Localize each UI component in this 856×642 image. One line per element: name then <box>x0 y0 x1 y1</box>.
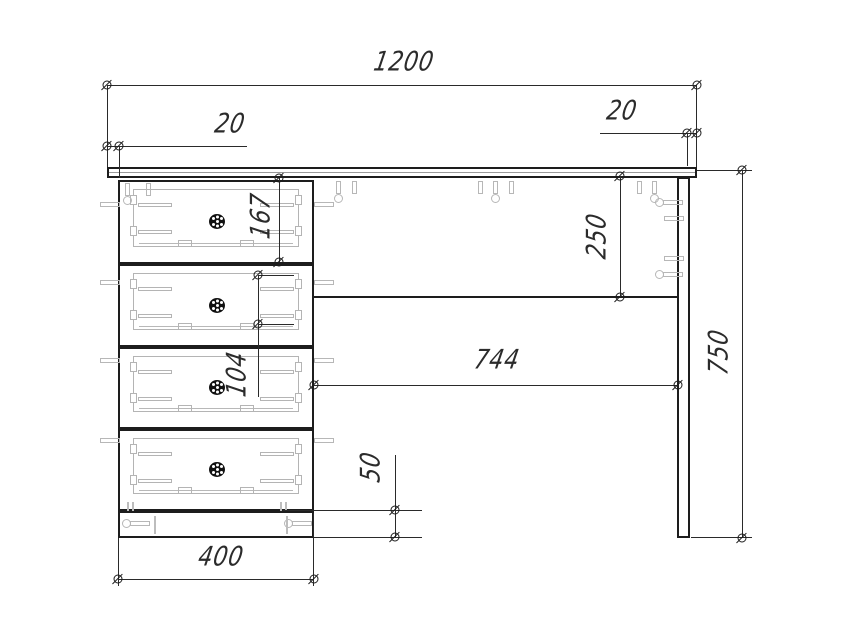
dim-terminator-icon <box>616 293 625 302</box>
drawer-bottom-line <box>139 243 293 244</box>
screw-icon <box>478 181 483 194</box>
dim-ext-line <box>107 85 108 167</box>
screw-icon <box>663 200 683 205</box>
dim-ext-line <box>696 85 697 167</box>
drawer-front-3 <box>118 347 314 429</box>
slide-rail <box>260 452 294 456</box>
dim-label-104: 104 <box>222 349 253 399</box>
plinth-panel <box>118 511 314 538</box>
dim-line-20-left <box>107 146 247 147</box>
bottom-tag <box>240 240 254 247</box>
slide-clip <box>130 310 137 320</box>
screw-icon <box>100 438 120 443</box>
dim-ext-line <box>687 133 688 166</box>
dim-label-167: 167 <box>246 191 277 241</box>
dim-line-744 <box>314 385 678 386</box>
slide-rail <box>260 479 294 483</box>
screw-icon <box>314 202 334 207</box>
dim-label-1200: 1200 <box>371 47 436 78</box>
slide-rail <box>138 370 172 374</box>
drawer-bottom-line <box>139 326 293 327</box>
slide-clip <box>295 195 302 205</box>
plinth-bracket <box>154 516 156 534</box>
knob-icon <box>209 214 225 229</box>
slide-clip <box>295 393 302 403</box>
screw-icon <box>100 202 120 207</box>
dim-line-104 <box>258 275 259 397</box>
slide-clip <box>295 444 302 454</box>
bottom-tag <box>240 405 254 412</box>
plinth-screw <box>130 521 150 526</box>
dim-terminator-icon <box>275 258 284 267</box>
slide-clip <box>130 393 137 403</box>
dowel-pin <box>132 502 134 511</box>
screw-icon <box>314 358 334 363</box>
slide-clip <box>130 475 137 485</box>
slide-rail <box>138 314 172 318</box>
drawer-front-2 <box>118 264 314 347</box>
dim-terminator-icon <box>115 142 124 151</box>
dim-leader <box>258 324 294 325</box>
slide-clip <box>295 362 302 372</box>
dim-terminator-icon <box>693 129 702 138</box>
drawer-bottom-line <box>139 490 293 491</box>
bottom-tag <box>178 487 192 494</box>
slide-rail <box>138 452 172 456</box>
slide-clip <box>295 475 302 485</box>
knob-icon <box>209 462 225 477</box>
slide-clip <box>130 362 137 372</box>
screw-icon <box>663 272 683 277</box>
dim-label-744: 744 <box>472 345 522 376</box>
right-leg-panel <box>677 177 690 538</box>
dim-terminator-icon <box>674 381 683 390</box>
plinth-bracket <box>286 516 288 534</box>
bottom-tag <box>178 405 192 412</box>
dim-ext-line <box>119 146 120 178</box>
dim-terminator-icon <box>616 172 625 181</box>
dim-terminator-icon <box>254 271 263 280</box>
slide-rail <box>260 370 294 374</box>
technical-drawing-canvas: 1200 20 20 167 104 250 744 750 50 400 <box>0 0 856 642</box>
knob-icon <box>209 298 225 313</box>
dim-label-750: 750 <box>704 327 735 377</box>
dim-line-167 <box>279 178 280 262</box>
dim-leader <box>283 510 422 511</box>
slide-clip <box>130 226 137 236</box>
dim-terminator-icon <box>738 166 747 175</box>
dim-label-20-right: 20 <box>604 96 639 127</box>
drawer-front-4 <box>118 429 314 511</box>
slide-clip <box>130 444 137 454</box>
dim-line-250 <box>620 176 621 297</box>
dim-label-250: 250 <box>582 211 613 261</box>
screw-icon <box>637 181 642 194</box>
screw-icon <box>314 438 334 443</box>
screw-icon <box>352 181 357 194</box>
dim-line-400 <box>118 579 314 580</box>
screw-icon <box>314 280 334 285</box>
tabletop-edge-line <box>109 172 695 173</box>
slide-clip <box>130 279 137 289</box>
screw-icon <box>664 216 684 221</box>
slide-rail <box>260 287 294 291</box>
slide-rail <box>138 203 172 207</box>
dim-terminator-icon <box>310 575 319 584</box>
plinth-screw <box>292 521 312 526</box>
dim-terminator-icon <box>275 174 284 183</box>
slide-rail <box>260 314 294 318</box>
slide-rail <box>138 397 172 401</box>
screw-icon <box>125 183 130 196</box>
bottom-tag <box>178 323 192 330</box>
slide-rail <box>260 397 294 401</box>
screw-icon <box>509 181 514 194</box>
dim-terminator-icon <box>738 534 747 543</box>
dim-leader <box>314 537 422 538</box>
dim-line-50 <box>395 455 396 537</box>
dim-terminator-icon <box>693 81 702 90</box>
dim-label-20-left: 20 <box>212 109 247 140</box>
dowel-pin <box>280 502 282 511</box>
screw-icon <box>664 256 684 261</box>
dim-label-400: 400 <box>196 542 246 573</box>
screw-icon <box>100 280 120 285</box>
dim-label-50: 50 <box>356 449 387 484</box>
bottom-tag <box>178 240 192 247</box>
slide-clip <box>295 279 302 289</box>
bottom-tag <box>240 487 254 494</box>
slide-rail <box>138 479 172 483</box>
screw-icon <box>493 181 498 194</box>
dim-line-750 <box>742 170 743 538</box>
dim-terminator-icon <box>683 129 692 138</box>
slide-rail <box>138 287 172 291</box>
drawer-bottom-line <box>139 408 293 409</box>
slide-clip <box>295 226 302 236</box>
dim-terminator-icon <box>391 506 400 515</box>
slide-rail <box>138 230 172 234</box>
screw-icon <box>146 183 151 196</box>
slide-clip <box>295 310 302 320</box>
dim-terminator-icon <box>114 575 123 584</box>
dim-terminator-icon <box>103 81 112 90</box>
dim-terminator-icon <box>254 320 263 329</box>
dim-terminator-icon <box>310 381 319 390</box>
screw-icon <box>652 181 657 194</box>
dim-leader <box>258 275 294 276</box>
dowel-pin <box>127 502 129 511</box>
dim-line-1200 <box>107 85 697 86</box>
dim-terminator-icon <box>103 142 112 151</box>
screw-icon <box>336 181 341 194</box>
dim-terminator-icon <box>391 533 400 542</box>
screw-icon <box>100 358 120 363</box>
